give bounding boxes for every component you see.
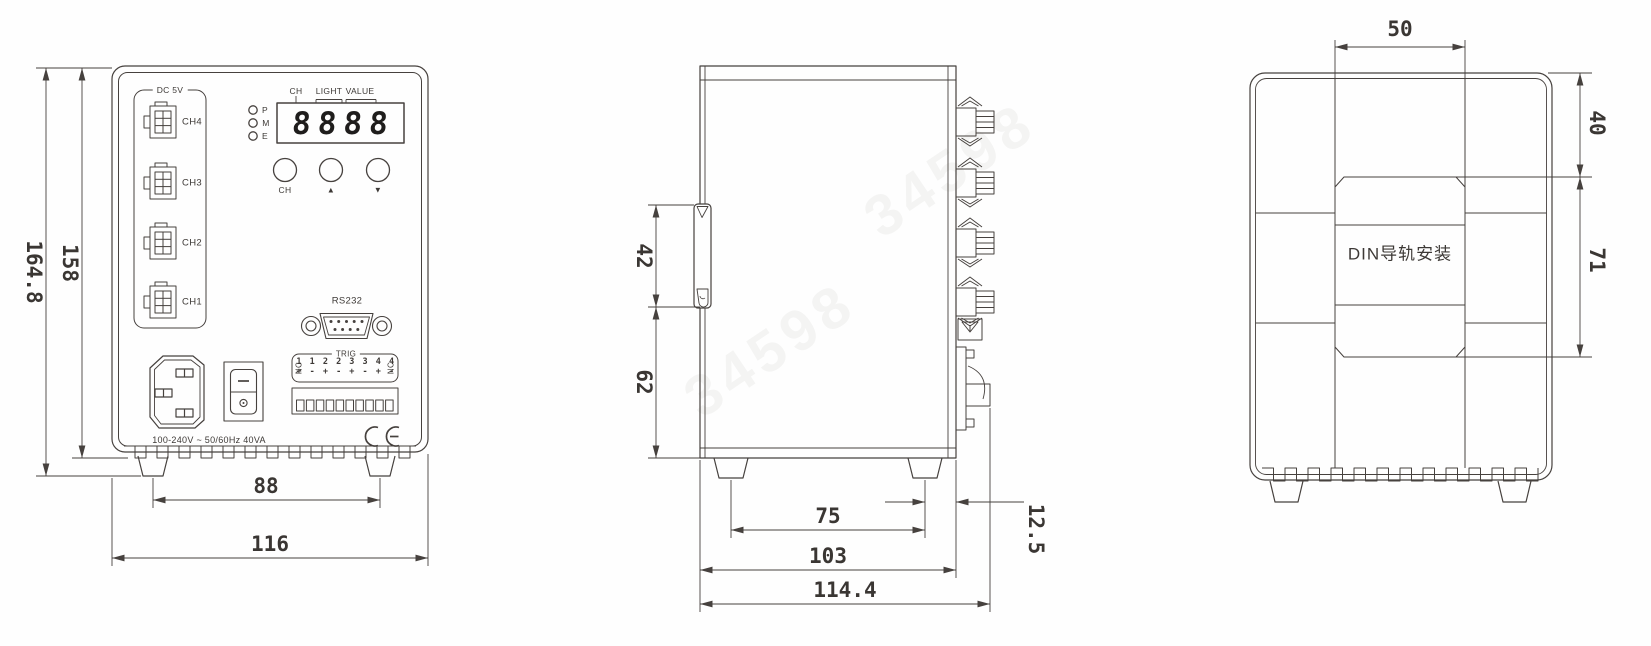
ch1-label: CH1 [182, 297, 202, 308]
led-p-label: P [262, 105, 268, 115]
led-e-label: E [262, 131, 268, 141]
led-p-icon [249, 106, 257, 114]
back-body-inner-line [1256, 79, 1547, 475]
ce-mark-icon [365, 427, 399, 446]
dim-body-height: 158 [58, 244, 82, 282]
ch2-label: CH2 [182, 238, 202, 249]
up-button-label: ▲ [327, 186, 335, 195]
side-left-foot [714, 458, 748, 478]
rs232-label: RS232 [332, 296, 363, 307]
side-right-foot [908, 458, 942, 478]
display-value-label: VALUE [346, 86, 375, 96]
dim-body-depth: 103 [809, 544, 847, 568]
down-button-label: ▼ [374, 186, 382, 195]
dim-clip-to-bottom: 62 [632, 369, 656, 394]
dc5v-group-label: DC 5V [153, 85, 188, 95]
trig-signs-row: + - + - + - + - [296, 367, 395, 377]
dim-feet-pitch-front: 88 [253, 474, 278, 498]
down-button-shape [367, 159, 390, 182]
dim-top-to-pocket: 40 [1585, 110, 1609, 135]
back-left-foot [1270, 481, 1303, 502]
side-latch-box [958, 319, 982, 340]
trig-terminal-block [292, 388, 398, 414]
trig-nc-right-label: NC [387, 362, 396, 374]
power-rating-text: 100-240V ~ 50/60Hz 40VA [152, 435, 266, 445]
back-dimensions [1335, 40, 1592, 357]
ch3-connector [144, 163, 176, 199]
display-light-label: LIGHT [316, 86, 343, 96]
front-left-foot [138, 456, 168, 476]
back-view [1250, 40, 1592, 502]
ch1-connector [144, 282, 176, 318]
up-button-shape [320, 159, 343, 182]
ch3-label: CH3 [182, 178, 202, 189]
led-e-icon [249, 132, 257, 140]
ac-inlet [150, 356, 204, 428]
dim-channel-width: 50 [1387, 17, 1412, 41]
front-right-foot [365, 456, 395, 476]
dim-feet-pitch-side: 75 [815, 504, 840, 528]
dim-total-height: 164.8 [22, 240, 46, 303]
dim-total-depth: 114.4 [813, 578, 876, 602]
dim-total-width: 116 [251, 532, 289, 556]
ch2-connector [144, 223, 176, 259]
din-pocket [1335, 177, 1465, 357]
ch4-connector [144, 102, 176, 138]
display-ch-label: CH [290, 86, 303, 96]
rs232-port [302, 314, 392, 339]
dim-rear-offset: 12.5 [1024, 504, 1048, 555]
side-connector-3 [956, 218, 994, 267]
trig-numbers-row: 1 1 2 2 3 3 4 4 [296, 357, 395, 367]
led-m-icon [249, 119, 257, 127]
back-right-foot [1498, 481, 1531, 502]
din-mount-label: DIN导轨安装 [1348, 240, 1452, 265]
seven-segment-display: 8888 [284, 106, 397, 142]
dim-din-clip-height: 42 [632, 243, 656, 268]
side-rs232-profile [956, 347, 990, 430]
power-switch [224, 362, 263, 421]
led-m-label: M [262, 118, 269, 128]
back-body-outline [1250, 73, 1552, 480]
display-label-brackets [296, 96, 376, 103]
ch-button-shape [274, 159, 297, 182]
din-clip-profile [694, 204, 711, 308]
dim-pocket-height: 71 [1585, 247, 1609, 272]
ch4-label: CH4 [182, 117, 202, 128]
ch-button-label: CH [279, 185, 292, 195]
dimension-drawing-page: 34598 34598 DC 5V CH4 CH3 CH2 CH1 P M E … [0, 0, 1651, 646]
